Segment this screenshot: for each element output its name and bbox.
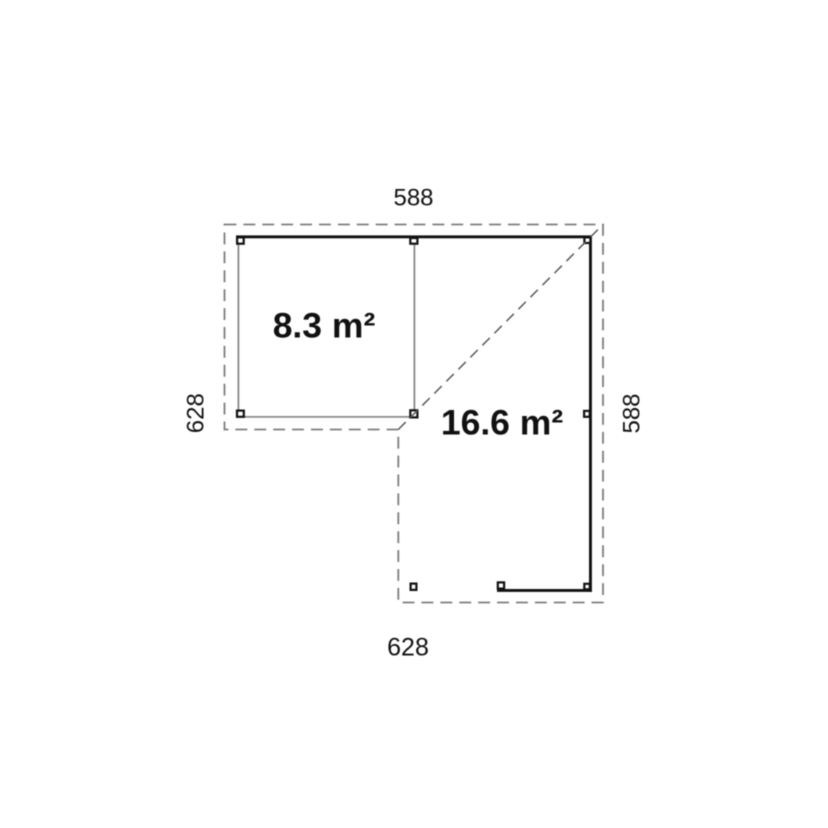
svg-text:628: 628 — [183, 393, 210, 433]
svg-text:588: 588 — [393, 185, 433, 212]
svg-text:16.6 m²: 16.6 m² — [441, 403, 564, 443]
svg-text:628: 628 — [387, 633, 429, 661]
svg-text:8.3 m²: 8.3 m² — [273, 306, 376, 346]
svg-text:588: 588 — [619, 393, 646, 433]
